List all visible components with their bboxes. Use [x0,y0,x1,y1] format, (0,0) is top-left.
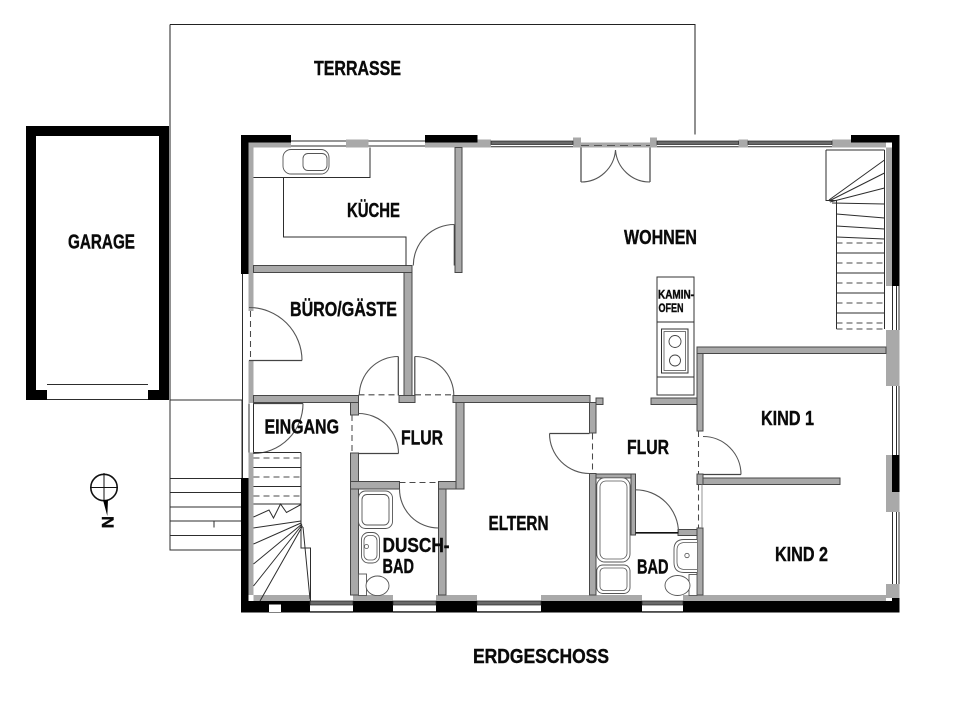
svg-text:BAD: BAD [637,557,669,579]
svg-text:KÜCHE: KÜCHE [347,199,400,222]
svg-text:ERDGESCHOSS: ERDGESCHOSS [473,646,609,668]
svg-text:KAMIN-: KAMIN- [658,290,694,302]
svg-text:KIND 1: KIND 1 [761,408,814,430]
svg-text:WOHNEN: WOHNEN [624,227,697,249]
svg-text:FLUR: FLUR [401,428,443,450]
svg-text:ELTERN: ELTERN [489,513,549,535]
svg-text:BÜRO/GÄSTE: BÜRO/GÄSTE [290,298,397,321]
svg-text:N: N [98,516,117,528]
svg-text:GARAGE: GARAGE [68,232,135,254]
svg-text:OFEN: OFEN [659,303,684,315]
svg-text:FLUR: FLUR [627,437,669,459]
svg-text:BAD: BAD [383,556,415,578]
svg-text:TERRASSE: TERRASSE [314,58,401,80]
svg-text:EINGANG: EINGANG [265,417,340,439]
svg-text:DUSCH-: DUSCH- [383,535,450,557]
svg-text:KIND 2: KIND 2 [775,544,828,566]
